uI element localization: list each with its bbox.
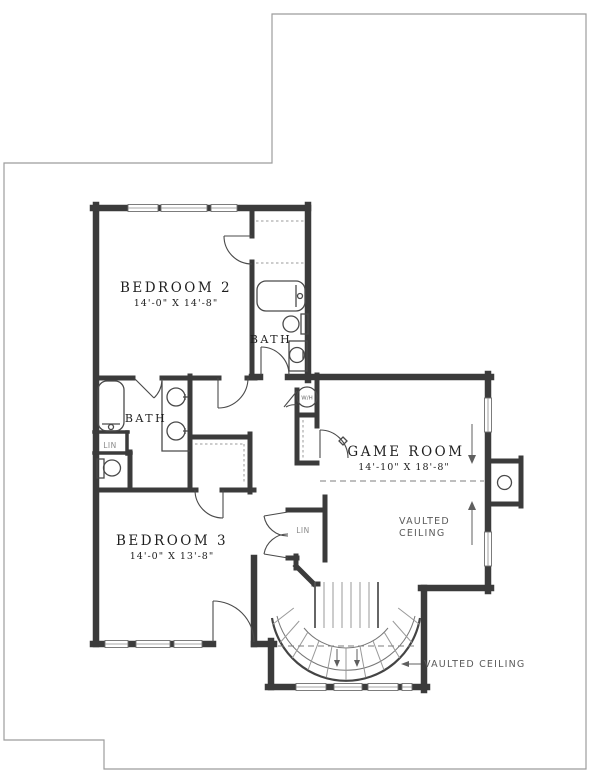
interior-walls [94,208,325,584]
window [211,205,237,212]
stair-treads [324,582,369,628]
window [296,684,326,691]
staircase [272,582,420,681]
stair-direction-arrows [334,649,360,667]
game-room-dims: 14'-10" X 18'-8" [358,462,450,473]
bedroom3-label: BEDROOM 3 [116,533,228,549]
window [402,684,412,691]
bathtub-icon [98,381,124,431]
bathtub-icon [257,281,305,311]
bedroom3-dims: 14'-0" X 13'-8" [130,551,214,562]
vaulted-ceiling-game-line1: VAULTED [399,516,450,527]
window [161,205,207,212]
bedroom2-label: BEDROOM 2 [120,280,232,296]
window [485,398,492,432]
toilet-icon [283,314,308,334]
window [485,532,492,566]
fireplace-bumpout [488,458,521,506]
stair-fan-treads [273,608,420,680]
floor-plan-drawing: W/H [0,0,603,783]
door-arc [224,236,252,264]
bedroom2-dims: 14'-0" X 14'-8" [134,298,218,309]
toilet-icon [97,459,121,478]
water-heater-icon: W/H [297,387,317,407]
door-arc [213,601,254,642]
water-heater-label: W/H [301,396,312,402]
vaulted-ceiling-leader [401,661,421,667]
double-door-arcs [264,512,288,558]
window [174,641,202,648]
game-room-label: GAME ROOM [347,444,464,460]
window [128,205,158,212]
vaulted-ceiling-stairs-label: VAULTED CEILING [424,659,525,670]
door-arc [218,378,248,408]
linen-bath-label: LIN [103,441,117,450]
window [334,684,362,691]
door-arc [195,490,223,518]
window [105,641,128,648]
vault-arrow-down-icon [468,424,476,464]
vaulted-ceiling-game-line2: CEILING [399,528,445,539]
fireplace-icon [498,476,512,490]
bath-left-label: BATH [125,412,167,425]
bath-upper-label: BATH [250,333,292,346]
window [368,684,398,691]
linen-hall-label: LIN [296,526,310,535]
vault-arrow-up-icon [468,501,476,545]
window [136,641,170,648]
door-arc [135,379,162,398]
floor-plan-sheet: W/H [0,0,603,783]
door-arc [261,347,289,375]
